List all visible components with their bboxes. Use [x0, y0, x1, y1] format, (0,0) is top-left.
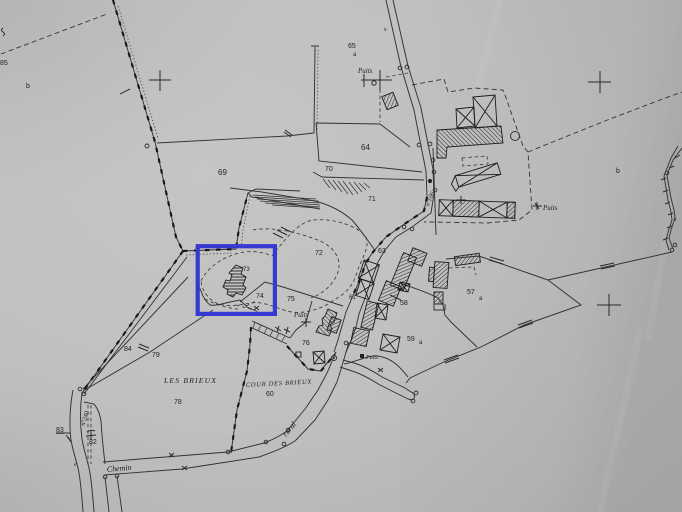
svg-text:b: b	[616, 168, 620, 175]
svg-text:85: 85	[0, 60, 8, 67]
svg-text:b: b	[26, 83, 30, 90]
svg-text:82: 82	[89, 439, 97, 446]
svg-text:61: 61	[349, 295, 356, 301]
svg-text:78: 78	[174, 399, 182, 406]
svg-text:Puits: Puits	[357, 67, 373, 75]
svg-text:76: 76	[302, 340, 310, 347]
svg-text:75: 75	[287, 296, 295, 303]
svg-text:63: 63	[378, 248, 386, 255]
svg-text:57: 57	[467, 289, 475, 296]
svg-text:79: 79	[152, 352, 160, 359]
svg-text:60: 60	[266, 391, 274, 398]
svg-text:64: 64	[361, 143, 370, 152]
svg-text:84: 84	[124, 346, 132, 353]
svg-text:83: 83	[56, 427, 64, 434]
svg-text:LES BRIEUX: LES BRIEUX	[163, 376, 217, 385]
svg-text:71: 71	[368, 196, 376, 203]
svg-text:59: 59	[407, 336, 415, 343]
svg-text:73: 73	[243, 267, 250, 273]
svg-text:70: 70	[325, 166, 333, 173]
svg-text:65: 65	[348, 43, 356, 50]
svg-text:e: e	[74, 462, 77, 468]
svg-text:Puits: Puits	[293, 311, 309, 319]
svg-text:Puits: Puits	[542, 204, 558, 212]
svg-text:Puits: Puits	[365, 355, 379, 361]
svg-text:58: 58	[400, 300, 408, 307]
svg-text:72: 72	[315, 250, 323, 257]
svg-text:69: 69	[218, 168, 227, 177]
svg-text:74: 74	[256, 293, 264, 300]
